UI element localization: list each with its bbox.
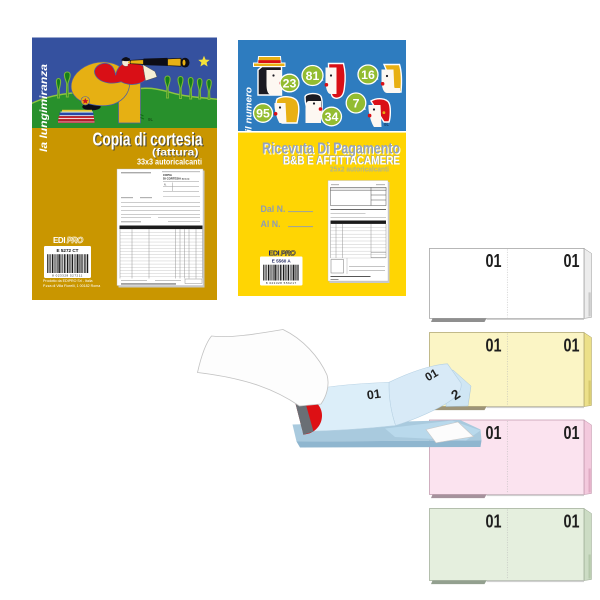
svg-text:P.zza di Villa Fiorelli, 1 00: P.zza di Villa Fiorelli, 1 00182 Roma: [43, 284, 100, 288]
svg-text:9L: 9L: [384, 122, 390, 127]
svg-text:EDI: EDI: [53, 236, 65, 245]
svg-text:EDI: EDI: [269, 248, 280, 257]
svg-text:01: 01: [564, 511, 580, 531]
svg-text:01: 01: [564, 251, 580, 271]
svg-text:01: 01: [486, 335, 502, 355]
svg-text:8 023328 527211: 8 023328 527211: [52, 273, 83, 277]
svg-text:N.: N.: [164, 184, 167, 187]
svg-text:01: 01: [564, 335, 580, 355]
svg-text:01: 01: [564, 423, 580, 443]
svg-text:23: 23: [283, 76, 297, 90]
svg-text:7: 7: [353, 96, 360, 110]
svg-text:8 023328 556217: 8 023328 556217: [266, 281, 297, 285]
svg-text:la lungimiranza: la lungimiranza: [38, 64, 50, 152]
svg-text:01: 01: [486, 251, 502, 271]
svg-text:E 5560 A: E 5560 A: [272, 259, 292, 264]
svg-text:Prodotto da EDIPRO Srl - Itali: Prodotto da EDIPRO Srl - Italia: [43, 279, 93, 283]
svg-text:9L: 9L: [148, 117, 154, 122]
svg-text:01: 01: [366, 387, 382, 403]
svg-text:01: 01: [486, 511, 502, 531]
svg-text:Dal N.: Dal N.: [261, 204, 286, 214]
svg-text:25x2 autoricalcanti: 25x2 autoricalcanti: [330, 167, 389, 174]
svg-text:PRO: PRO: [67, 236, 84, 245]
svg-text:E 5272 CT: E 5272 CT: [57, 248, 79, 253]
svg-text:Al N.: Al N.: [261, 219, 281, 229]
svg-text:16: 16: [361, 68, 375, 82]
svg-text:01: 01: [486, 423, 502, 443]
svg-text:33x3 autoricalcanti: 33x3 autoricalcanti: [137, 157, 202, 167]
svg-text:81: 81: [306, 69, 320, 83]
svg-text:PRO: PRO: [281, 248, 296, 257]
svg-text:il numero: il numero: [244, 86, 254, 132]
svg-text:95: 95: [256, 106, 270, 120]
svg-text:34: 34: [325, 110, 339, 124]
